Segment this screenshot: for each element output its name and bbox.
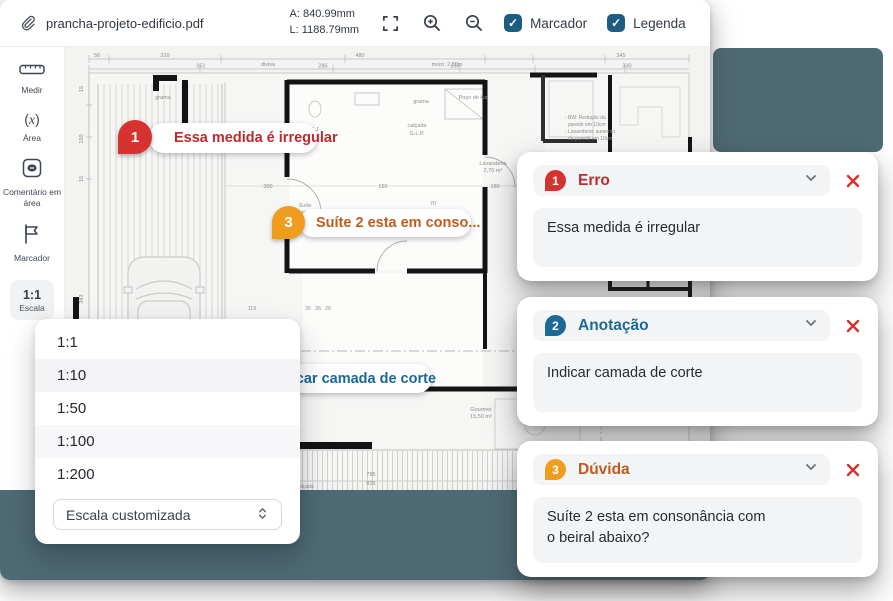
card-header: 1 Erro [533, 165, 862, 196]
document-filename: prancha-projeto-edificio.pdf [46, 16, 204, 31]
svg-text:Suíte: Suíte [299, 203, 312, 209]
scale-option-1-10[interactable]: 1:10 [35, 359, 300, 392]
checkbox-checked-icon[interactable]: ✓ [607, 14, 625, 32]
ruler-icon [19, 63, 45, 81]
card-title: Anotação [578, 317, 649, 335]
svg-text:330: 330 [622, 64, 631, 70]
tool-marcador-label: Marcador [14, 253, 50, 264]
svg-text:15,50 m²: 15,50 m² [470, 414, 492, 420]
measurement-readout: A: 840.99mm L: 1188.79mm [290, 7, 360, 39]
card-title: Dúvida [578, 461, 630, 479]
svg-text:180: 180 [490, 184, 499, 190]
marker-badge-2: 2 [545, 315, 566, 336]
svg-text:150: 150 [79, 134, 85, 143]
annotation-card-anotacao: 2 Anotação Indicar camada de corte [517, 297, 878, 426]
svg-text:26: 26 [315, 306, 321, 312]
tool-escala-active[interactable]: 1:1 Escala [10, 280, 54, 320]
svg-text:115: 115 [248, 306, 257, 312]
svg-text:70: 70 [430, 201, 436, 207]
svg-text:15: 15 [79, 86, 85, 92]
svg-text:150: 150 [378, 184, 387, 190]
fullscreen-icon[interactable] [381, 14, 400, 33]
svg-text:285: 285 [318, 64, 327, 70]
svg-text:351: 351 [196, 64, 205, 70]
svg-text:2,70 m²: 2,70 m² [484, 168, 503, 174]
svg-text:divisa: divisa [261, 62, 276, 68]
chevron-down-icon[interactable] [804, 460, 818, 479]
tool-comentario-label: Comentário em área [2, 187, 62, 208]
marker-pin-3[interactable]: 3 [272, 206, 305, 239]
card-header-bar[interactable]: 3 Dúvida [533, 454, 830, 485]
annotation-card-erro: 1 Erro Essa medida é irregular [517, 152, 878, 281]
svg-text:310: 310 [160, 53, 169, 59]
scale-option-1-1[interactable]: 1:1 [35, 326, 300, 359]
teal-backdrop-panel [713, 48, 883, 152]
svg-text:26: 26 [305, 306, 311, 312]
marker-pin-1[interactable]: 1 [118, 120, 152, 154]
svg-text:G.L.P.: G.L.P. [410, 131, 425, 137]
measurement-l: L: 1188.79mm [290, 23, 360, 39]
custom-scale-placeholder: Escala customizada [66, 507, 191, 523]
svg-text:Poço de luz: Poço de luz [459, 95, 488, 101]
card-body-text[interactable]: Essa medida é irregular [533, 208, 862, 267]
flag-icon [23, 224, 41, 249]
legenda-checkbox[interactable]: ✓ Legenda [607, 14, 686, 32]
scale-option-1-100[interactable]: 1:100 [35, 425, 300, 458]
tool-escala-label: Escala [19, 303, 45, 313]
marcador-checkbox[interactable]: ✓ Marcador [504, 14, 587, 32]
scale-value: 1:1 [23, 288, 41, 302]
svg-text:grama: grama [413, 99, 430, 105]
paperclip-icon [18, 14, 36, 32]
scale-option-1-50[interactable]: 1:50 [35, 392, 300, 425]
svg-text:Gourmet: Gourmet [470, 407, 492, 413]
marker-label-1[interactable]: Essa medida é irregular [149, 123, 317, 153]
svg-text:- Lavanderia: aumento: - Lavanderia: aumento [565, 129, 615, 135]
tool-medir-label: Medir [21, 85, 42, 96]
svg-text:calçada: calçada [408, 123, 428, 129]
screenshot-root: prancha-projeto-edificio.pdf A: 840.99mm… [0, 0, 893, 601]
chevron-updown-icon [256, 506, 269, 524]
custom-scale-select[interactable]: Escala customizada [53, 499, 282, 530]
tool-marcador[interactable]: Marcador [2, 224, 62, 264]
card-header-bar[interactable]: 1 Erro [533, 165, 830, 196]
svg-text:grama: grama [155, 95, 172, 101]
zoom-out-icon[interactable] [464, 13, 484, 33]
tool-comentario-em-area[interactable]: Comentário em área [2, 158, 62, 208]
comment-area-icon [22, 158, 42, 183]
tool-area[interactable]: (x) Área [2, 111, 62, 144]
svg-text:343: 343 [79, 294, 85, 303]
card-body-text[interactable]: Suíte 2 esta em consonância com o beiral… [533, 497, 862, 563]
chevron-down-icon[interactable] [804, 316, 818, 335]
svg-text:Lavanderia: Lavanderia [479, 161, 507, 167]
scale-dropdown: 1:1 1:10 1:50 1:100 1:200 Escala customi… [35, 319, 300, 544]
close-icon[interactable] [844, 172, 862, 190]
annotation-card-duvida: 3 Dúvida Suíte 2 esta em consonância com… [517, 441, 878, 577]
legenda-checkbox-label: Legenda [633, 16, 686, 31]
card-title: Erro [578, 172, 610, 190]
tool-medir[interactable]: Medir [2, 63, 62, 96]
svg-text:da parede em 10cm: da parede em 10cm [568, 136, 612, 142]
close-icon[interactable] [844, 461, 862, 479]
svg-text:785: 785 [366, 472, 375, 478]
marcador-checkbox-label: Marcador [530, 16, 587, 31]
zoom-in-icon[interactable] [422, 13, 442, 33]
svg-text:- BW: Redução da: - BW: Redução da [565, 115, 606, 121]
svg-text:parede em 10cm: parede em 10cm [568, 122, 606, 128]
card-header: 3 Dúvida [533, 454, 862, 485]
card-header: 2 Anotação [533, 310, 862, 341]
svg-text:150: 150 [450, 64, 459, 70]
tool-area-label: Área [23, 133, 41, 144]
marker-label-3[interactable]: Suíte 2 esta em conso... [299, 209, 471, 237]
card-header-bar[interactable]: 2 Anotação [533, 310, 830, 341]
svg-text:26: 26 [325, 306, 331, 312]
svg-text:56: 56 [94, 53, 100, 59]
svg-text:15: 15 [79, 176, 85, 182]
marker-badge-1: 1 [545, 170, 566, 191]
close-icon[interactable] [844, 317, 862, 335]
checkbox-checked-icon[interactable]: ✓ [504, 14, 522, 32]
svg-text:480: 480 [355, 53, 364, 59]
card-body-text[interactable]: Indicar camada de corte [533, 353, 862, 412]
marker-badge-3: 3 [545, 459, 566, 480]
scale-option-1-200[interactable]: 1:200 [35, 458, 300, 491]
toolbar: prancha-projeto-edificio.pdf A: 840.99mm… [0, 0, 710, 47]
measurement-a: A: 840.99mm [290, 7, 360, 23]
svg-text:825: 825 [366, 481, 375, 487]
area-function-icon: (x) [24, 111, 40, 129]
svg-text:345: 345 [616, 53, 625, 59]
svg-text:300: 300 [263, 184, 272, 190]
chevron-down-icon[interactable] [804, 171, 818, 190]
